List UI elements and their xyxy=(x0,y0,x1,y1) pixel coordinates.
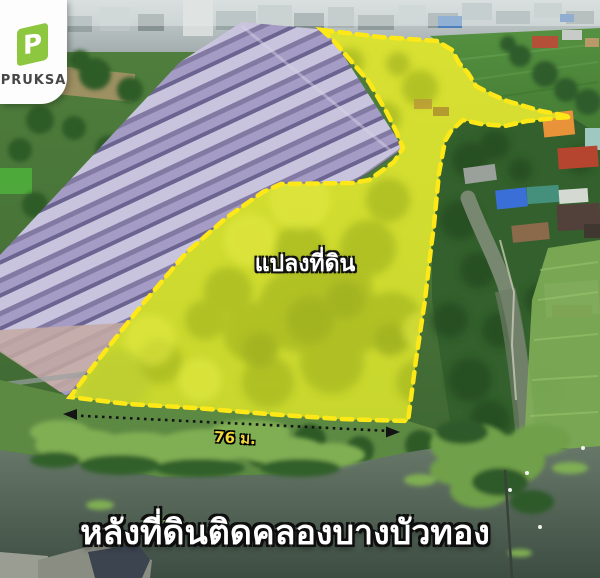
aerial-photo: P PRUKSA แปลงที่ดิน 76 ม. หลังที่ดินติดค… xyxy=(0,0,600,578)
brand-logo-card: P PRUKSA xyxy=(0,0,67,104)
measurement-label: 76 ม. xyxy=(199,424,270,452)
logo-letter: P xyxy=(23,30,42,58)
pruksa-logo-icon: P xyxy=(17,22,48,66)
village xyxy=(432,110,600,460)
brand-name: PRUKSA xyxy=(0,73,67,88)
caption-text: หลังที่ดินติดคลองบางบัวทอง xyxy=(55,505,515,559)
plot-label: แปลงที่ดิน xyxy=(225,246,385,282)
aerial-scene xyxy=(0,0,600,578)
